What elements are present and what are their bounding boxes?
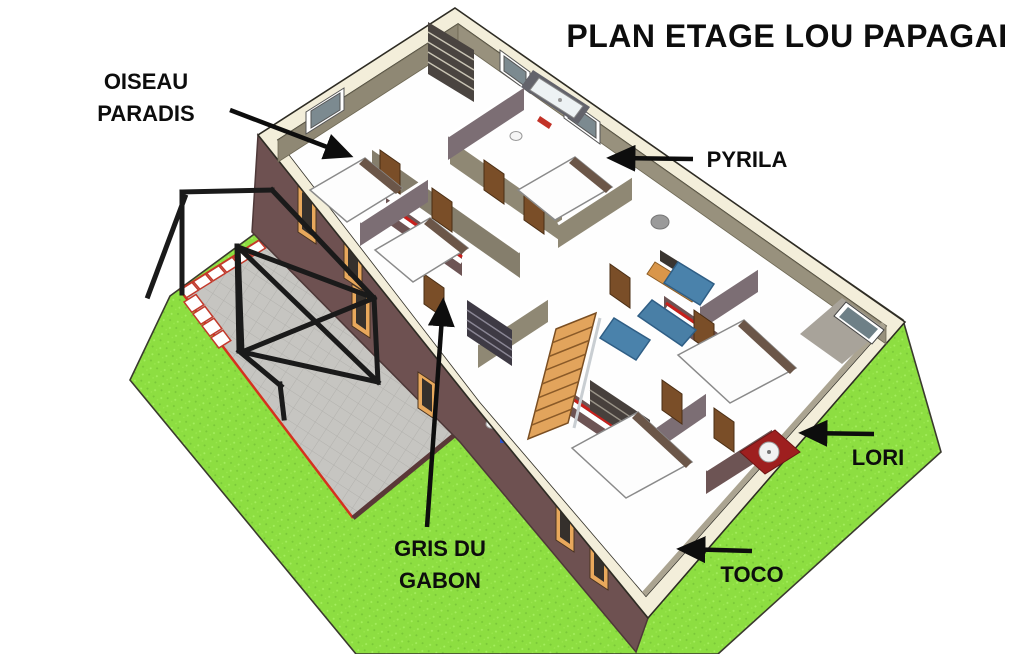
arrow-pyrila: [612, 158, 693, 159]
label-oiseau-line1: OISEAU: [104, 69, 188, 94]
arrow-toco: [682, 549, 752, 551]
ottoman: [651, 215, 669, 229]
toilet: [510, 132, 522, 141]
label-pyrila: PYRILA: [707, 147, 788, 172]
label-gris-line1: GRIS DU: [394, 536, 486, 561]
label-lori: LORI: [852, 445, 905, 470]
page-title: PLAN ETAGE LOU PAPAGAI: [566, 18, 1007, 54]
arrow-lori: [804, 433, 874, 434]
label-gris-line2: GABON: [399, 568, 481, 593]
floorplan-page: PLAN ETAGE LOU PAPAGAI OISEAU PARADIS PY…: [0, 0, 1024, 654]
floorplan-canvas: PLAN ETAGE LOU PAPAGAI OISEAU PARADIS PY…: [0, 0, 1024, 654]
label-toco: TOCO: [720, 562, 783, 587]
label-oiseau-line2: PARADIS: [97, 101, 194, 126]
